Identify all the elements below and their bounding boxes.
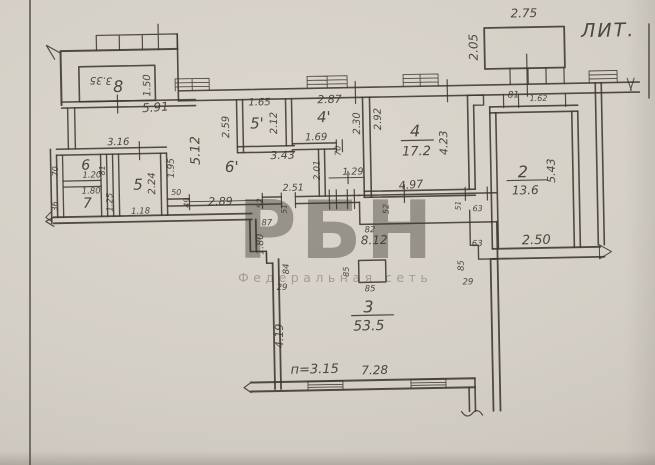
room5p-number: 5'	[250, 114, 264, 132]
dim-room8-depth: 1.50	[142, 74, 153, 96]
dim-balcony-width: 2.75	[510, 6, 537, 21]
dim-169: 1.69	[305, 132, 327, 143]
dim-corridor-512: 5.12	[188, 136, 204, 165]
room8-number: 8	[113, 77, 124, 96]
scanned-floor-plan-page: 2.75 2.05 ЛИТ. 3.35 8 1.50 5.91 3.16 70 …	[0, 0, 655, 465]
dim-343: 3.43	[270, 149, 295, 162]
dim-29-right: 29	[463, 277, 474, 287]
dim-room4p-depth: 2.30	[352, 112, 363, 134]
dim-room8-width: 3.35	[90, 74, 113, 86]
room4p-number: 4'	[317, 108, 331, 126]
room3-area: 53.5	[353, 318, 385, 335]
dim-85-right: 85	[457, 260, 467, 271]
room2-area: 13.6	[512, 183, 539, 198]
dim-259: 2.59	[221, 116, 232, 138]
dim-70-left: 70	[51, 166, 60, 176]
dim-201: 2.01	[313, 160, 323, 180]
dim-room5-depth: 2.24	[147, 172, 158, 194]
dim-room5-width: 1.18	[131, 206, 151, 216]
dim-room4p-width: 2.87	[317, 93, 342, 106]
dim-room2-depth: 5.43	[545, 158, 558, 183]
room4-number: 4	[410, 121, 421, 140]
dim-room5p-width: 1.65	[248, 97, 270, 108]
dim-wall-591: 5.91	[142, 99, 170, 115]
dim-51-right: 51	[453, 201, 462, 211]
dim-room3-width: 7.28	[361, 363, 388, 378]
dim-block-316: 3.16	[107, 137, 129, 148]
dim-room3-left: 4.19	[273, 324, 286, 349]
room6p-number: 6'	[225, 158, 239, 176]
room5-number: 5	[133, 176, 143, 194]
watermark-tagline: Федеральная сеть	[238, 270, 432, 285]
dim-63-door-upper: 63	[472, 204, 482, 213]
dim-49-jamb: 49	[182, 198, 191, 208]
room2-number: 2	[518, 162, 529, 181]
litera-label: ЛИТ.	[580, 19, 636, 42]
dim-room7-depth: 1.25	[105, 193, 115, 212]
room7-number: 7	[83, 196, 92, 212]
walls-top-outer	[175, 70, 639, 107]
dim-column-85-bottom: 85	[365, 284, 376, 294]
dim-entry-162: 1.62	[530, 94, 548, 103]
dim-corridor-289: 2.89	[208, 195, 233, 208]
dim-room4-left: 2.92	[373, 108, 384, 130]
dim-195: 1.95	[167, 158, 177, 179]
ceiling-height-note: п=3.15	[290, 362, 339, 378]
dim-250: 2.50	[522, 233, 551, 249]
watermark: РБН Федеральная сеть	[238, 184, 437, 285]
dim-balcony-depth: 2.05	[466, 34, 481, 61]
dim-entry-81: 81	[508, 90, 520, 100]
dim-room4-depth: 4.23	[437, 130, 450, 155]
dim-63-door-lower: 63	[472, 239, 483, 249]
dim-129: 1.29	[342, 166, 363, 177]
floor-plan-drawing: 2.75 2.05 ЛИТ. 3.35 8 1.50 5.91 3.16 70 …	[0, 0, 655, 465]
watermark-logo: РБН	[238, 184, 437, 277]
walls-balcony	[484, 26, 566, 108]
dim-room5p-depth: 2.12	[269, 112, 280, 134]
dim-81-door: 81	[98, 165, 107, 175]
room4-area: 17.2	[402, 144, 431, 160]
room3-number: 3	[363, 297, 374, 316]
dim-70-door: 70	[333, 146, 342, 156]
dim-50: 50	[171, 188, 181, 197]
dim-36-left: 36	[50, 201, 59, 211]
